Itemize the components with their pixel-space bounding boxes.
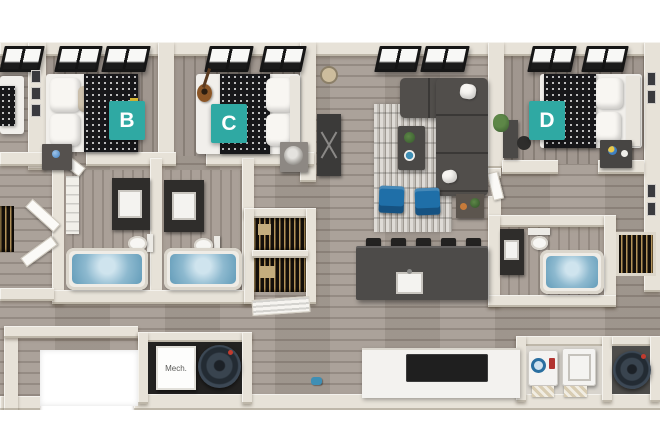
bedroom-c-label: C <box>211 104 247 143</box>
wall-bedroom-b-c <box>158 42 174 164</box>
side-table-decor <box>460 203 467 210</box>
wall-entry-left <box>4 326 18 410</box>
bathtub <box>66 248 148 290</box>
pillow <box>596 78 623 109</box>
bedroom-b-label: B <box>109 101 145 140</box>
toilet-tank <box>528 228 550 235</box>
side-table-plant <box>470 198 480 208</box>
window-bedroom-c-1 <box>204 46 254 72</box>
window-bedroom-c-2 <box>259 46 307 72</box>
window-bedroom-b-1 <box>54 46 103 72</box>
toilet-tank <box>147 234 153 252</box>
console-table <box>317 114 341 176</box>
wall-mech-right <box>242 332 252 404</box>
duvet <box>0 86 15 126</box>
window-living-2 <box>420 46 470 72</box>
metal-stool <box>284 146 303 165</box>
pillow <box>596 112 621 142</box>
bathtub <box>164 248 242 290</box>
wall-bath-bottom <box>52 290 254 304</box>
wall-clock <box>320 66 338 84</box>
wall-bedrooms-bottom-2 <box>86 152 176 166</box>
wall-heater-right <box>650 336 660 402</box>
entry-door-opening <box>40 350 138 406</box>
wall-bath-divider <box>150 158 162 298</box>
wall-hall-bottom <box>0 288 54 301</box>
linen-shelf <box>66 176 79 234</box>
bathtub <box>540 250 604 294</box>
vanity-sink <box>172 192 196 220</box>
headboard <box>626 76 640 146</box>
wall-art-frame <box>647 184 656 198</box>
decor-bowl <box>404 150 415 161</box>
window-bedroom-a <box>0 46 45 72</box>
toilet <box>531 236 548 250</box>
storage-box <box>258 224 271 235</box>
wall-mech-left <box>138 332 148 404</box>
wall-mech-top <box>138 332 252 342</box>
wall-living-bedroom-d <box>488 42 504 168</box>
accent-chair <box>379 186 405 214</box>
accent-chair <box>415 188 441 216</box>
wall-bath-d-right <box>604 215 616 307</box>
window-living-1 <box>374 46 422 72</box>
globe-decor <box>608 146 617 155</box>
pillow <box>50 114 80 146</box>
bottom-margin <box>0 410 660 440</box>
pillow <box>50 78 80 112</box>
closet-shelf-divider <box>252 250 308 258</box>
wall-bath-d-left <box>488 215 500 307</box>
pet-bowl <box>311 377 322 385</box>
wall-bath-d-top <box>488 215 616 227</box>
wall-art-frame <box>647 202 656 216</box>
air-handler-unit <box>198 345 241 388</box>
mug <box>621 150 628 157</box>
bath-water <box>546 256 598 288</box>
closet-rack-d <box>616 232 656 276</box>
wall-art-frame <box>31 87 41 100</box>
wall-art-frame <box>31 70 41 83</box>
window-bedroom-b-2 <box>101 46 151 72</box>
faucet <box>407 269 412 274</box>
laundry-basket <box>532 386 554 397</box>
ahu-indicator <box>228 350 233 355</box>
floor-plant <box>493 114 509 132</box>
wall-bath-d-bottom <box>488 295 616 307</box>
laundry-basket <box>564 386 587 397</box>
mech-label: Mech. <box>165 364 187 373</box>
wall-entry-top <box>4 326 138 338</box>
window-bedroom-d-2 <box>581 46 629 72</box>
lamp <box>52 150 60 158</box>
table-plant <box>404 132 415 143</box>
window-bedroom-d-1 <box>527 46 577 72</box>
wall-laundry-right <box>602 336 612 402</box>
island-sink <box>396 272 423 294</box>
bath-water <box>170 254 236 284</box>
vanity-sink <box>504 240 519 260</box>
closet-rack <box>0 206 14 252</box>
dryer-door <box>568 354 591 381</box>
heater-indicator <box>641 354 646 359</box>
cooktop <box>406 354 488 382</box>
headboard <box>290 76 300 152</box>
bedroom-d-label: D <box>529 101 565 140</box>
washer-door <box>531 358 546 373</box>
bath-water <box>72 254 142 284</box>
mech-unit: Mech. <box>156 346 196 390</box>
wall-art-frame <box>647 90 656 104</box>
wall-art-frame <box>31 104 41 117</box>
vanity-sink <box>118 190 142 218</box>
floor-plan-image: Mech. B C D <box>0 0 660 440</box>
wall-bedroom-d-bottom-1 <box>502 160 558 174</box>
top-margin <box>0 0 660 42</box>
detergent-bottle <box>549 358 555 369</box>
storage-box <box>260 266 275 278</box>
wall-laundry-top <box>516 336 612 346</box>
wall-art-frame <box>647 72 656 86</box>
